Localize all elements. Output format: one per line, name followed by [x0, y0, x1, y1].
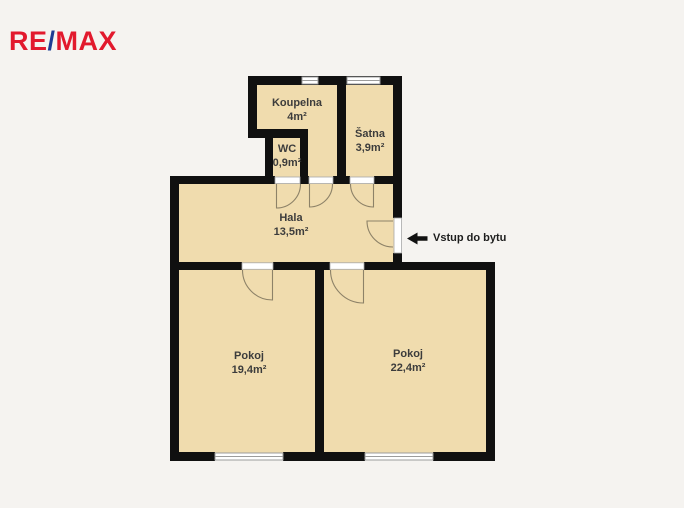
room-area: 4m²	[272, 110, 322, 124]
door-frame-satna	[350, 177, 374, 184]
room-name: Pokoj	[232, 349, 267, 363]
room-label-koupelna: Koupelna 4m²	[272, 96, 322, 124]
room-name: WC	[273, 142, 302, 156]
wall-bottom-a	[170, 452, 215, 461]
wall-hala-bottom-c	[364, 262, 495, 270]
door-frame-wc	[275, 177, 300, 184]
room-area: 13,5m²	[274, 225, 309, 239]
wall-right-upper	[393, 76, 402, 218]
room-name: Pokoj	[391, 347, 426, 361]
room-area: 22,4m²	[391, 361, 426, 375]
wall-koupelna-bottom	[248, 129, 308, 138]
entrance-label: Vstup do bytu	[433, 232, 506, 244]
room-name: Šatna	[355, 127, 385, 141]
wall-hala-top-b	[300, 176, 309, 184]
door-frame-entrance	[394, 218, 402, 253]
door-frame-koupelna	[309, 177, 333, 184]
room-label-satna: Šatna 3,9m²	[355, 127, 385, 155]
room-area: 0,9m²	[273, 156, 302, 170]
wall-hala-top-a	[170, 176, 275, 184]
window-pokoj-left	[215, 453, 283, 460]
wall-koupelna-left	[248, 76, 257, 138]
entrance-arrow-icon	[407, 233, 428, 245]
room-label-hala: Hala 13,5m²	[274, 211, 309, 239]
room-name: Hala	[274, 211, 309, 225]
window-pokoj-right	[365, 453, 433, 460]
room-label-wc: WC 0,9m²	[273, 142, 302, 170]
wall-bottom-c	[433, 452, 495, 461]
wall-bottom-b	[283, 452, 365, 461]
wall-hala-top-c	[333, 176, 350, 184]
room-label-pokoj-left: Pokoj 19,4m²	[232, 349, 267, 377]
wall-hala-bottom-a	[170, 262, 242, 270]
room-name: Koupelna	[272, 96, 322, 110]
room-label-pokoj-right: Pokoj 22,4m²	[391, 347, 426, 375]
wall-left	[170, 176, 179, 461]
floor-plan	[0, 0, 684, 508]
door-frame-pokoj-left	[242, 263, 273, 270]
wall-koupelna-satna-divider	[337, 76, 346, 184]
wall-pokoj-divider	[315, 262, 324, 461]
door-frame-pokoj-right	[330, 263, 364, 270]
window-koupelna	[302, 77, 318, 84]
room-area: 3,9m²	[355, 141, 385, 155]
wall-hala-top-d	[374, 176, 402, 184]
room-area: 19,4m²	[232, 363, 267, 377]
koupelna-arm-floor	[304, 130, 341, 180]
window-satna	[347, 77, 380, 84]
wall-right-lower	[486, 262, 495, 461]
